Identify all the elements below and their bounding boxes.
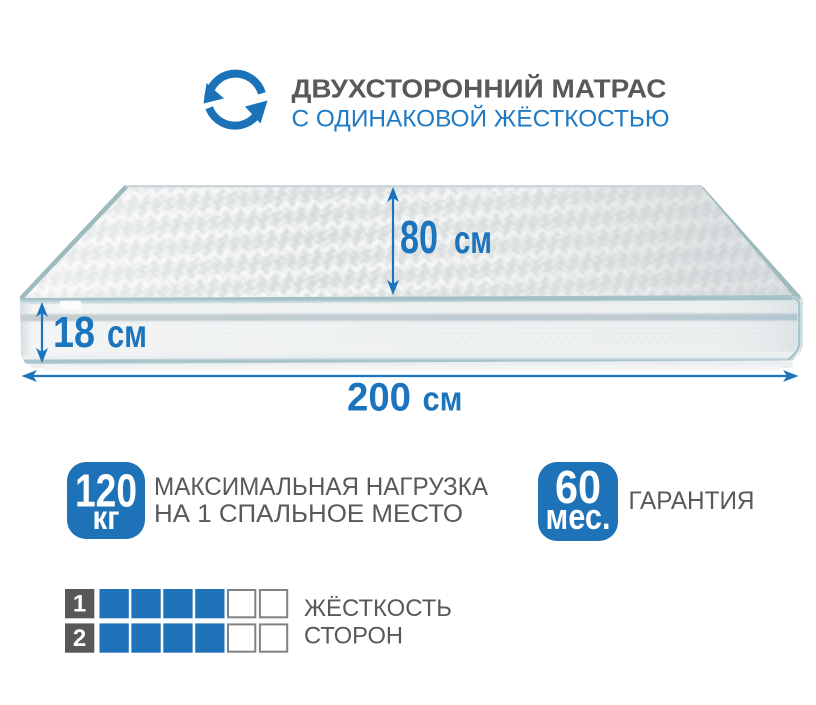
svg-text:мес.: мес. xyxy=(546,496,611,537)
svg-text:80: 80 xyxy=(400,211,438,263)
svg-text:ЖЁСТКОСТЬ: ЖЁСТКОСТЬ xyxy=(304,595,452,622)
svg-text:1: 1 xyxy=(73,591,86,618)
svg-text:2: 2 xyxy=(73,625,86,652)
svg-text:18: 18 xyxy=(53,308,95,357)
svg-text:НА 1 СПАЛЬНОЕ МЕСТО: НА 1 СПАЛЬНОЕ МЕСТО xyxy=(154,500,463,528)
svg-text:С ОДИНАКОВОЙ ЖЁСТКОСТЬЮ: С ОДИНАКОВОЙ ЖЁСТКОСТЬЮ xyxy=(292,104,670,132)
svg-text:200: 200 xyxy=(347,376,411,420)
svg-text:ДВУХСТОРОННИЙ МАТРАС: ДВУХСТОРОННИЙ МАТРАС xyxy=(292,74,667,104)
svg-text:СТОРОН: СТОРОН xyxy=(304,623,403,650)
svg-text:кг: кг xyxy=(93,499,120,536)
svg-text:см: см xyxy=(107,313,147,356)
svg-text:см: см xyxy=(454,219,492,262)
svg-text:МАКСИМАЛЬНАЯ НАГРУЗКА: МАКСИМАЛЬНАЯ НАГРУЗКА xyxy=(154,473,488,501)
svg-text:см: см xyxy=(423,381,463,419)
svg-text:ГАРАНТИЯ: ГАРАНТИЯ xyxy=(629,487,755,515)
